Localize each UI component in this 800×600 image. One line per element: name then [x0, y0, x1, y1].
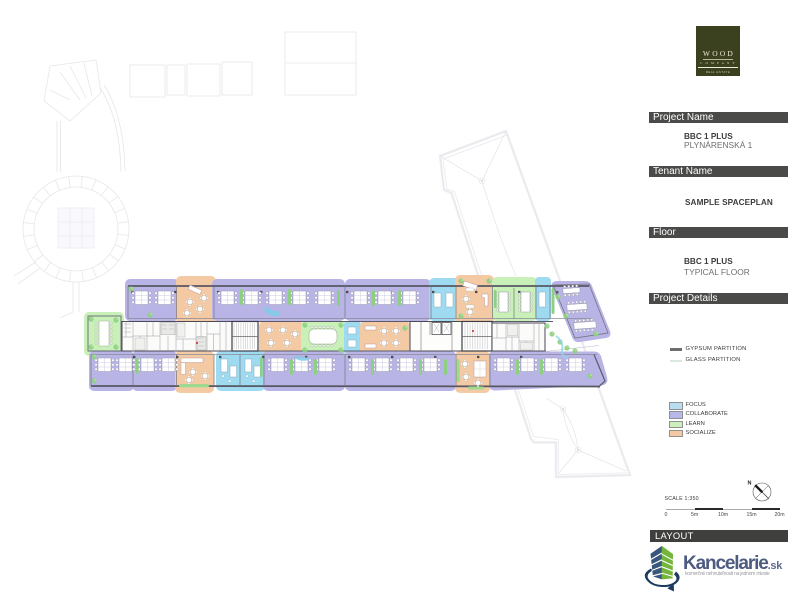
svg-text:N: N — [748, 481, 752, 487]
